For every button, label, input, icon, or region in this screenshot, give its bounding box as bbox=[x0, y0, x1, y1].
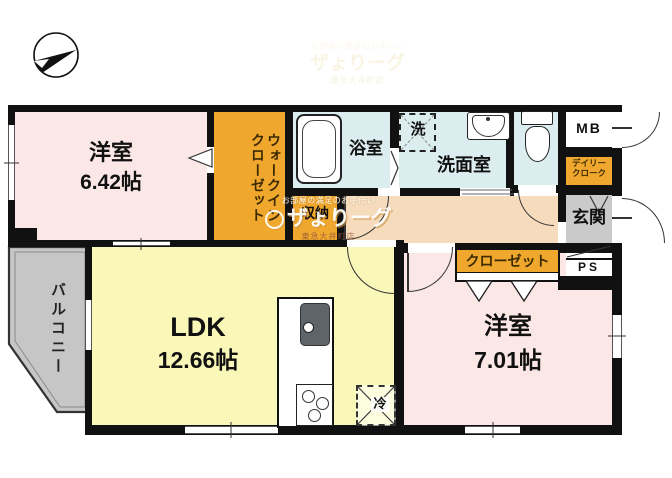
bath-label: 浴室 bbox=[340, 139, 392, 159]
wall-segment bbox=[566, 185, 612, 195]
washer-label: 洗 bbox=[404, 121, 432, 138]
window bbox=[113, 241, 170, 246]
bath-door-corner bbox=[378, 188, 400, 196]
wall-segment bbox=[612, 148, 622, 196]
toilet-tank-icon bbox=[521, 111, 553, 125]
entrance-label: 玄関 bbox=[566, 208, 612, 228]
wall-segment bbox=[85, 425, 622, 435]
wall-segment bbox=[337, 195, 344, 240]
faucet-icon bbox=[303, 322, 314, 333]
fridge-label: 冷 bbox=[371, 397, 389, 412]
wic-label: ウォークイン クローゼット bbox=[218, 118, 282, 238]
burner-icon bbox=[308, 409, 321, 422]
balcony-label: バルコニー bbox=[38, 254, 66, 404]
bathtub-inner bbox=[302, 120, 336, 178]
wall-segment bbox=[612, 358, 622, 435]
ldk-door-opening bbox=[347, 240, 396, 247]
wall-segment bbox=[558, 243, 622, 246]
entrance-door-arc bbox=[622, 198, 665, 243]
washroom-label: 洗面室 bbox=[423, 155, 505, 176]
window bbox=[465, 426, 520, 434]
bedroom2-label: 洋室 7.01帖 bbox=[438, 313, 578, 373]
ldk-area: 12.66帖 bbox=[128, 347, 268, 373]
watermark-tagline: お部屋の満足のお手伝い bbox=[290, 42, 425, 52]
daily-cloak-label: デイリー クローク bbox=[566, 159, 612, 179]
burner-icon bbox=[316, 397, 329, 410]
shuno-door-leaf bbox=[344, 196, 346, 240]
wall-segment bbox=[207, 112, 214, 240]
washroom-door-opening bbox=[460, 188, 510, 196]
shuno-label: 収納 bbox=[293, 205, 337, 221]
window bbox=[185, 426, 278, 434]
wic-door-opening bbox=[207, 147, 214, 173]
bedroom1-area: 6.42帖 bbox=[41, 171, 181, 195]
north-arrow-icon bbox=[30, 28, 86, 84]
bedroom2-area: 7.01帖 bbox=[438, 347, 578, 373]
meter-box-door-leaf bbox=[612, 127, 632, 129]
wic-line1: ウォークイン bbox=[266, 118, 282, 238]
entrance-step-opening bbox=[558, 222, 566, 243]
watermark-top: お部屋の満足のお手伝い ザょりーグ 東急大井町店 bbox=[290, 42, 425, 86]
daily-cloak-line2: クローク bbox=[566, 169, 612, 179]
burner-icon bbox=[302, 390, 315, 403]
entrance-door-leaf bbox=[612, 217, 632, 219]
bedroom1-name: 洋室 bbox=[41, 140, 181, 165]
wall-segment bbox=[566, 147, 612, 157]
toilet-bowl-icon bbox=[525, 126, 550, 162]
watermark-store: 東急大井町店 bbox=[290, 76, 425, 86]
ldk-name: LDK bbox=[128, 312, 268, 343]
closet-label-box: クローゼット bbox=[455, 248, 560, 274]
closet-label: クローゼット bbox=[466, 251, 550, 271]
bedroom2-door-leaf bbox=[407, 253, 409, 292]
window bbox=[85, 300, 92, 350]
meter-box-door-arc bbox=[622, 112, 660, 148]
wall-segment bbox=[558, 276, 622, 290]
pipe-space-label: PS bbox=[566, 261, 612, 275]
ldk-label: LDK 12.66帖 bbox=[128, 312, 268, 373]
wall-segment bbox=[8, 240, 404, 247]
bedroom1-label: 洋室 6.42帖 bbox=[41, 140, 181, 195]
window bbox=[8, 125, 15, 200]
washbasin-faucet bbox=[486, 117, 490, 121]
meter-box-label: MB bbox=[566, 120, 612, 136]
watermark-logo: ザょりーグ bbox=[290, 52, 425, 76]
bedroom2-name: 洋室 bbox=[438, 313, 578, 341]
wall-segment bbox=[285, 112, 293, 240]
closet-front bbox=[455, 273, 560, 282]
floor-plan: クローゼット 洋室 6.42帖 bbox=[0, 0, 672, 478]
wall-segment bbox=[13, 228, 37, 240]
window bbox=[612, 315, 622, 358]
wic-line2: クローゼット bbox=[250, 118, 266, 238]
